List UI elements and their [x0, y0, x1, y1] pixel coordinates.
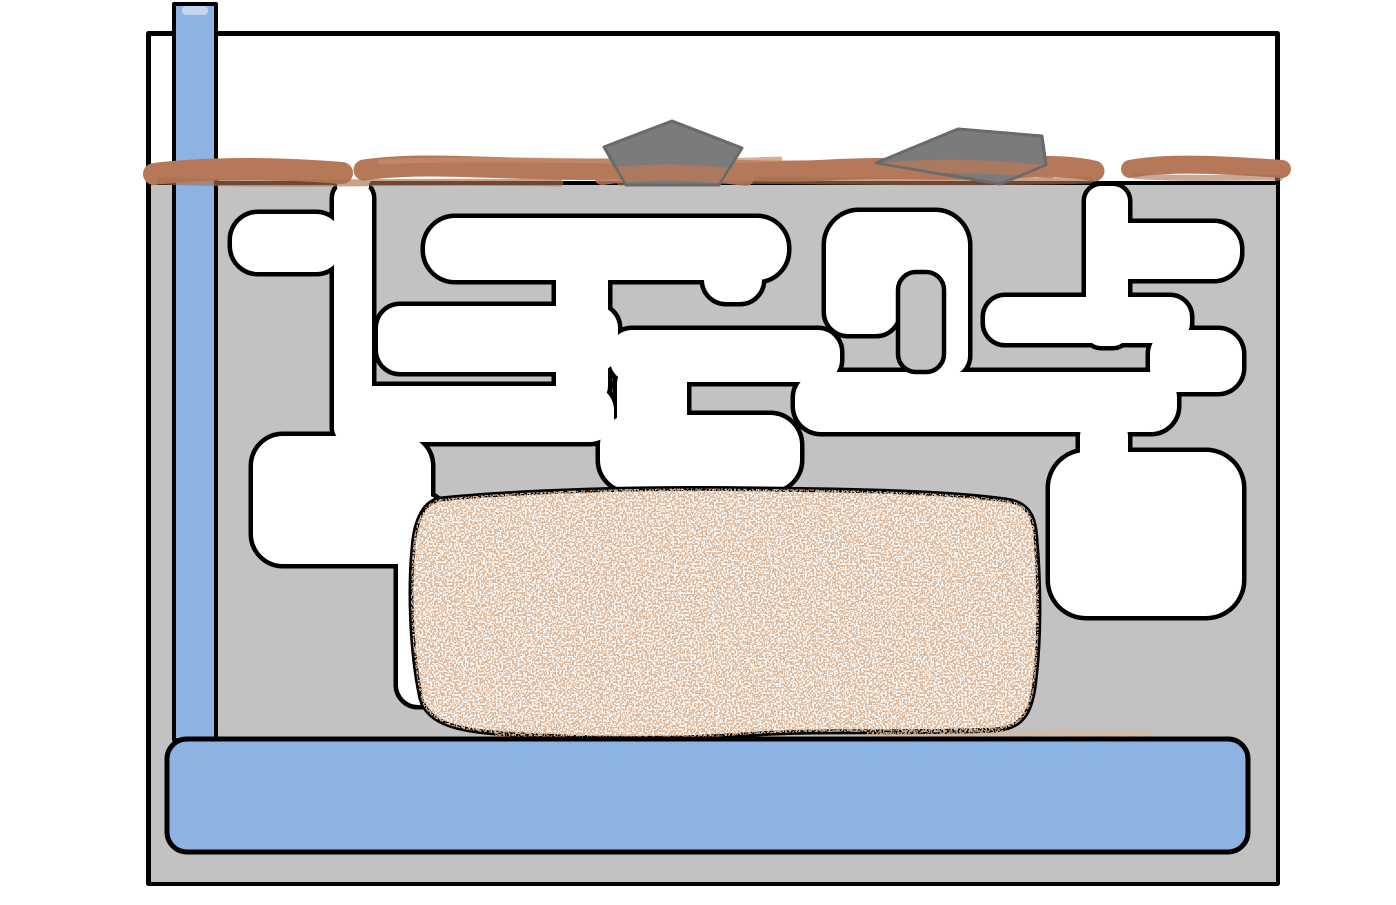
soil-dark-streak-3: [1135, 176, 1280, 178]
sand-speckle-texture: [402, 488, 1044, 744]
soil-stroke-right: [1130, 165, 1282, 169]
substrate-tongue: [898, 272, 944, 372]
water-tube-opening: [182, 6, 208, 15]
soil-dark-streak-1: [160, 181, 560, 183]
water-tube: [174, 4, 216, 740]
water-reservoir: [167, 739, 1248, 852]
sand-chamber: [402, 488, 1140, 745]
water-tube-body: [174, 4, 216, 740]
ant-farm-diagram: [0, 0, 1396, 905]
soil-stroke-left: [154, 169, 342, 174]
